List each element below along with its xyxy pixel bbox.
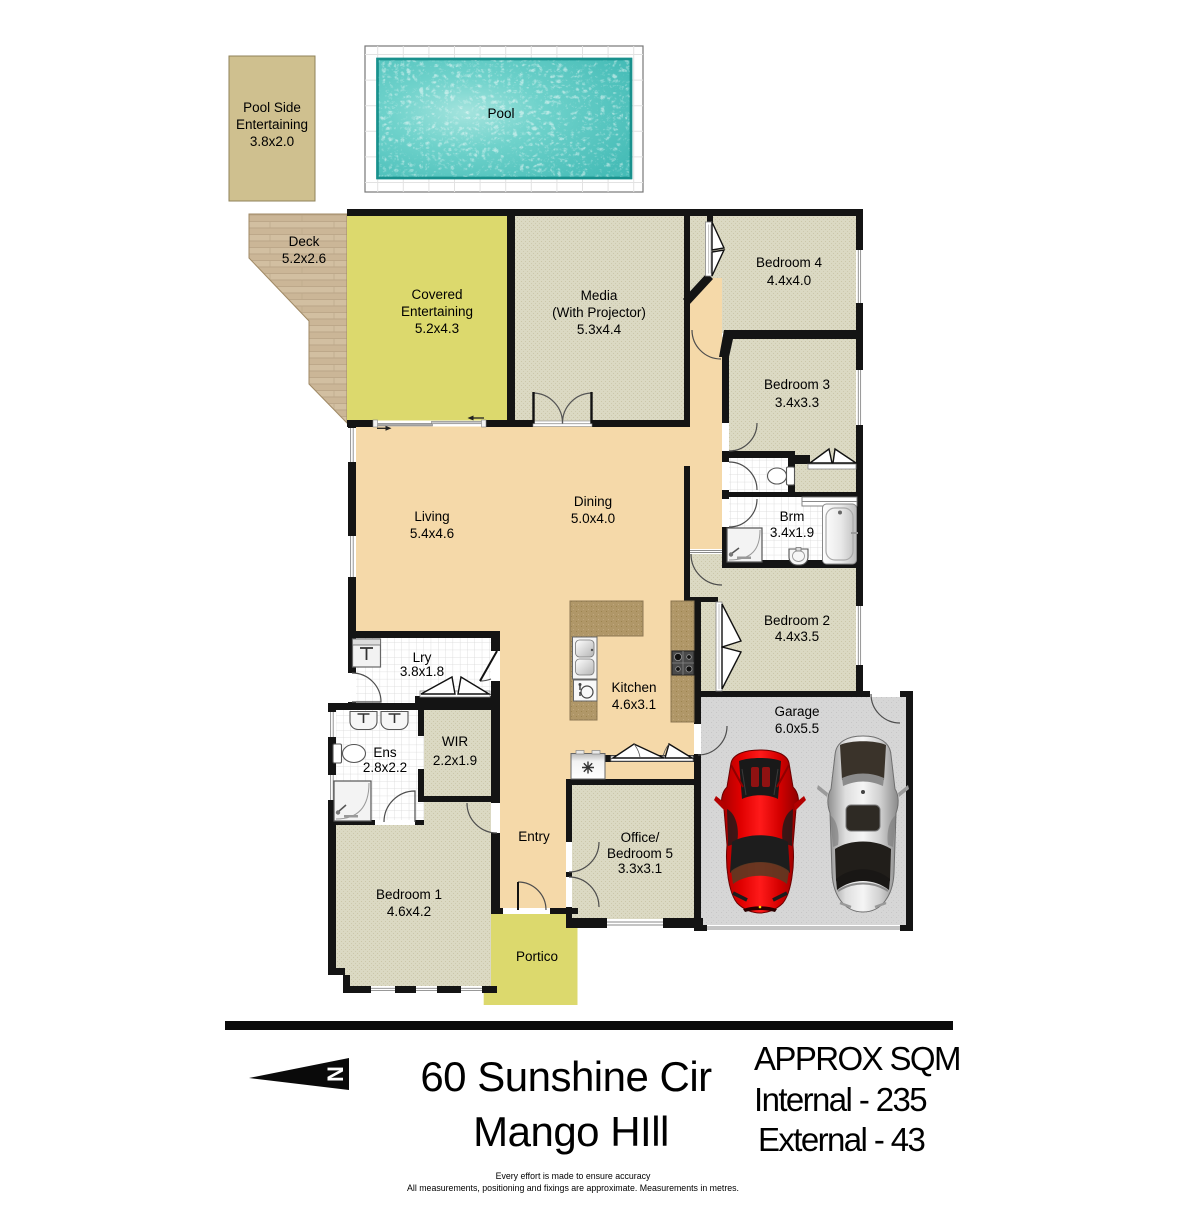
svg-text:5.2x2.6: 5.2x2.6: [282, 251, 326, 266]
svg-text:60 Sunshine Cir: 60 Sunshine Cir: [420, 1053, 712, 1100]
svg-text:Lry: Lry: [413, 650, 432, 665]
svg-text:Pool: Pool: [487, 106, 514, 121]
svg-text:WIR: WIR: [442, 734, 468, 749]
svg-text:4.4x3.5: 4.4x3.5: [775, 629, 819, 644]
svg-text:Bedroom 3: Bedroom 3: [764, 377, 830, 392]
svg-text:3.8x2.0: 3.8x2.0: [250, 134, 294, 149]
svg-text:4.6x4.2: 4.6x4.2: [387, 904, 431, 919]
svg-text:2.2x1.9: 2.2x1.9: [433, 753, 477, 768]
svg-text:Bedroom 2: Bedroom 2: [764, 613, 830, 628]
svg-text:Internal - 235: Internal - 235: [754, 1081, 926, 1118]
svg-text:Kitchen: Kitchen: [611, 680, 656, 695]
svg-text:Entertaining: Entertaining: [401, 304, 473, 319]
svg-text:Bedroom 4: Bedroom 4: [756, 255, 823, 270]
svg-text:Garage: Garage: [774, 704, 819, 719]
svg-text:3.3x3.1: 3.3x3.1: [618, 861, 662, 876]
svg-text:5.2x4.3: 5.2x4.3: [415, 321, 459, 336]
svg-text:Portico: Portico: [516, 949, 558, 964]
svg-text:Bedroom 5: Bedroom 5: [607, 846, 673, 861]
svg-text:Office/: Office/: [621, 830, 660, 845]
svg-text:Living: Living: [414, 509, 449, 524]
svg-text:4.4x4.0: 4.4x4.0: [767, 273, 811, 288]
svg-text:4.6x3.1: 4.6x3.1: [612, 697, 656, 712]
svg-text:3.8x1.8: 3.8x1.8: [400, 664, 444, 679]
svg-text:5.0x4.0: 5.0x4.0: [571, 511, 615, 526]
svg-text:Media: Media: [581, 288, 618, 303]
svg-text:5.3x4.4: 5.3x4.4: [577, 322, 622, 337]
svg-text:Dining: Dining: [574, 494, 612, 509]
svg-text:Ens: Ens: [373, 745, 397, 760]
svg-text:Entertaining: Entertaining: [236, 117, 308, 132]
svg-text:APPROX SQM: APPROX SQM: [754, 1040, 960, 1077]
svg-text:Entry: Entry: [518, 829, 550, 844]
svg-text:Covered: Covered: [411, 287, 462, 302]
svg-text:6.0x5.5: 6.0x5.5: [775, 721, 819, 736]
svg-text:Every effort is made to ensure: Every effort is made to ensure accuracy: [496, 1171, 651, 1181]
svg-text:External - 43: External - 43: [758, 1121, 925, 1158]
svg-text:Bedroom 1: Bedroom 1: [376, 887, 442, 902]
svg-text:Pool Side: Pool Side: [243, 100, 301, 115]
svg-text:(With Projector): (With Projector): [552, 305, 646, 320]
svg-text:3.4x1.9: 3.4x1.9: [770, 525, 814, 540]
svg-text:Brm: Brm: [780, 509, 805, 524]
svg-text:Mango HIll: Mango HIll: [473, 1108, 669, 1155]
svg-text:N: N: [323, 1066, 348, 1082]
svg-text:5.4x4.6: 5.4x4.6: [410, 526, 454, 541]
svg-text:2.8x2.2: 2.8x2.2: [363, 760, 407, 775]
svg-text:Deck: Deck: [289, 234, 320, 249]
svg-text:All measurements, positioning: All measurements, positioning and fixing…: [407, 1183, 739, 1193]
svg-text:3.4x3.3: 3.4x3.3: [775, 395, 819, 410]
